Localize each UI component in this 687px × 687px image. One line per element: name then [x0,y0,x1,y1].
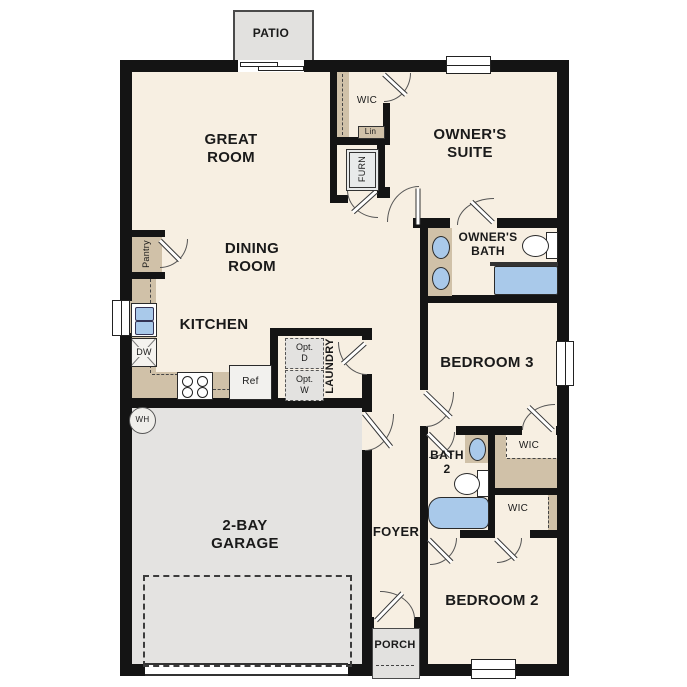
wall-segment [420,295,569,303]
sliding-glass-door [238,60,304,72]
owners-tub-shower [494,266,558,295]
wall-segment [460,530,495,538]
garage-label: 2-BAY GARAGE [185,517,305,553]
wall-segment [530,530,569,538]
wall-segment [303,60,447,72]
window-kitchen [112,300,130,336]
optional-washer: Opt. W [285,370,324,401]
dining-room-label: DINING ROOM [192,240,312,276]
door-leaf-owners-suite [416,189,421,225]
burner [182,387,193,398]
wall-segment [420,430,428,530]
sink-bowl [135,307,154,321]
wall-segment [362,398,372,412]
wall-segment [330,195,348,203]
burner [197,376,208,387]
bedroom2-label: BEDROOM 2 [422,592,562,610]
bedroom3-label: BEDROOM 3 [417,354,557,372]
wall-segment [120,60,132,301]
window-bedroom3 [556,341,574,386]
burner [197,387,208,398]
furnace-label: FURN [357,151,367,187]
wall-segment [362,328,372,340]
toilet-bowl [454,473,480,495]
laundry-label: LAUNDRY [324,331,336,401]
dishwasher-label: DW [132,347,156,357]
shelf-dash [548,497,549,528]
wall-segment [414,617,424,628]
garage-door-track [143,575,352,667]
counter-dash [150,279,151,303]
vanity-sink [432,267,450,290]
room-porch [372,628,420,679]
window-bedroom2 [471,659,516,679]
linen-label: Lin [358,127,383,137]
great-room-label: GREAT ROOM [171,131,291,167]
porch-step-dash [376,665,414,666]
garage-door-threshold [145,674,348,676]
bath2-label: BATH 2 [417,448,477,476]
window-owners-suite [446,56,491,74]
patio-label: PATIO [241,26,301,40]
bedroom2-wic-label: WIC [498,503,538,515]
wall-segment [513,664,569,676]
bedroom3-wic-shelf-left [495,435,506,488]
wall-segment [556,426,569,435]
pantry-label: Pantry [140,234,152,274]
foyer-label: FOYER [356,524,436,539]
dishwasher: DW [131,338,157,367]
slider-panel [258,66,304,71]
wall-segment [120,664,145,676]
shelf-dash [506,437,507,457]
counter-dash [213,389,230,390]
owners-wic-label: WIC [347,95,387,107]
shelf-dash [342,74,343,135]
shelf-dash [507,458,556,459]
sink-bowl [135,321,154,335]
refrigerator-label: Ref [230,376,271,388]
range-stove [177,372,213,400]
opt-w-line1: Opt. [286,374,323,385]
bath2-tub [428,497,489,529]
opt-w-line2: W [286,385,323,396]
kitchen-label: KITCHEN [154,316,274,334]
optional-dryer: Opt. D [285,338,324,369]
refrigerator: Ref [229,365,272,400]
bedroom3-wic-label: WIC [509,440,549,452]
wall-segment [488,426,495,488]
wall-segment [362,617,374,628]
wall-segment [497,218,569,228]
owners-suite-label: OWNER'S SUITE [400,126,540,162]
owners-bath-label: OWNER'S BATH [438,230,538,258]
water-heater: WH [129,407,156,434]
wall-segment [488,488,569,495]
water-heater-label: WH [130,415,155,425]
wall-segment [120,60,238,72]
wall-segment [362,374,372,400]
bedroom2-wic-shelf [548,495,557,530]
opt-d-line1: Opt. [286,342,323,353]
burner [182,376,193,387]
wall-segment [120,333,132,676]
wall-segment [270,328,370,336]
porch-label: PORCH [369,638,421,652]
counter-dash [152,374,178,375]
floor-plan: PATIO [0,0,687,687]
bedroom3-wic-shelf-bottom [506,458,557,488]
opt-d-line2: D [286,353,323,364]
